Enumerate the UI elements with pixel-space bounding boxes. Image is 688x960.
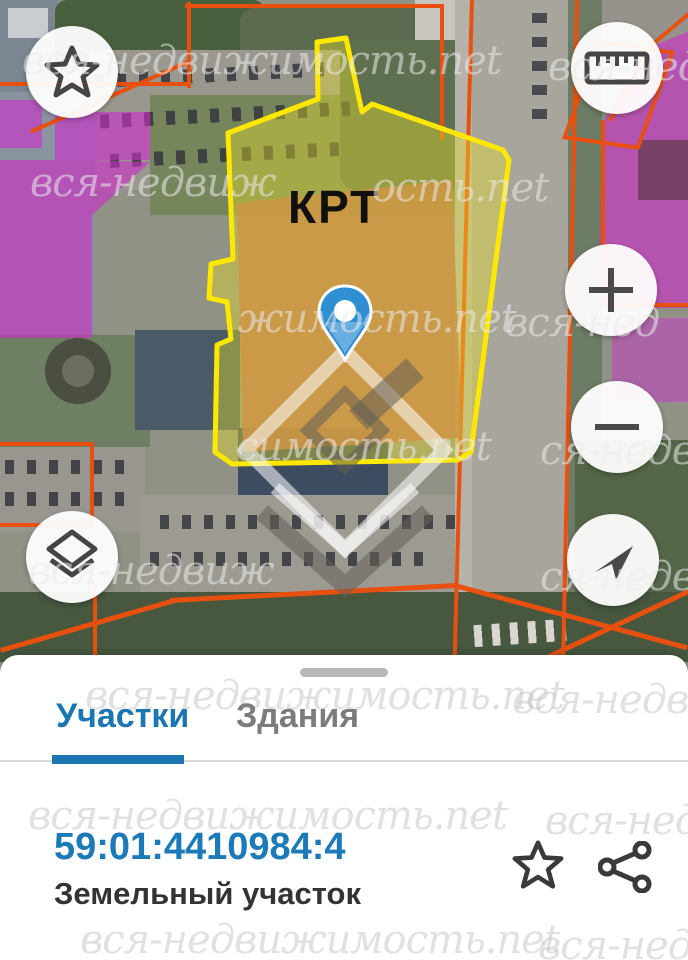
parcel-label: КРТ [288, 180, 380, 234]
tab-buildings[interactable]: Здания [236, 697, 359, 736]
object-type-label: Земельный участок [54, 876, 361, 912]
star-icon [512, 840, 564, 890]
cadastral-number: 59:01:4410984:4 [54, 826, 346, 869]
locate-button[interactable] [567, 514, 659, 606]
watermark-text: вся-недвижимость.net [80, 917, 559, 960]
share-icon [598, 841, 652, 893]
measure-button[interactable] [571, 22, 663, 114]
minus-icon [592, 402, 642, 452]
active-tab-indicator [52, 755, 184, 764]
watermark-text: вся-недви [512, 677, 688, 723]
bottom-sheet[interactable]: вся-недвижимость.net вся-недви вся-недви… [0, 655, 688, 960]
share-parcel-button[interactable] [598, 841, 652, 898]
location-pin-icon [313, 282, 377, 366]
star-icon [44, 45, 100, 99]
sheet-drag-handle[interactable] [300, 668, 388, 677]
favorites-button[interactable] [26, 26, 118, 118]
plus-icon [586, 265, 636, 315]
watermark-text: вся-недв [545, 798, 688, 844]
watermark-text: вся-недв [538, 923, 688, 960]
zoom-out-button[interactable] [571, 381, 663, 473]
layers-button[interactable] [26, 511, 118, 603]
app: КРТ [0, 0, 688, 960]
satellite-map[interactable]: КРТ [0, 0, 688, 662]
navigation-arrow-icon [589, 536, 637, 584]
zoom-in-button[interactable] [565, 244, 657, 336]
layers-icon [45, 529, 99, 585]
ruler-icon [584, 51, 650, 85]
favorite-parcel-button[interactable] [512, 840, 564, 895]
tab-parcels[interactable]: Участки [56, 697, 189, 736]
